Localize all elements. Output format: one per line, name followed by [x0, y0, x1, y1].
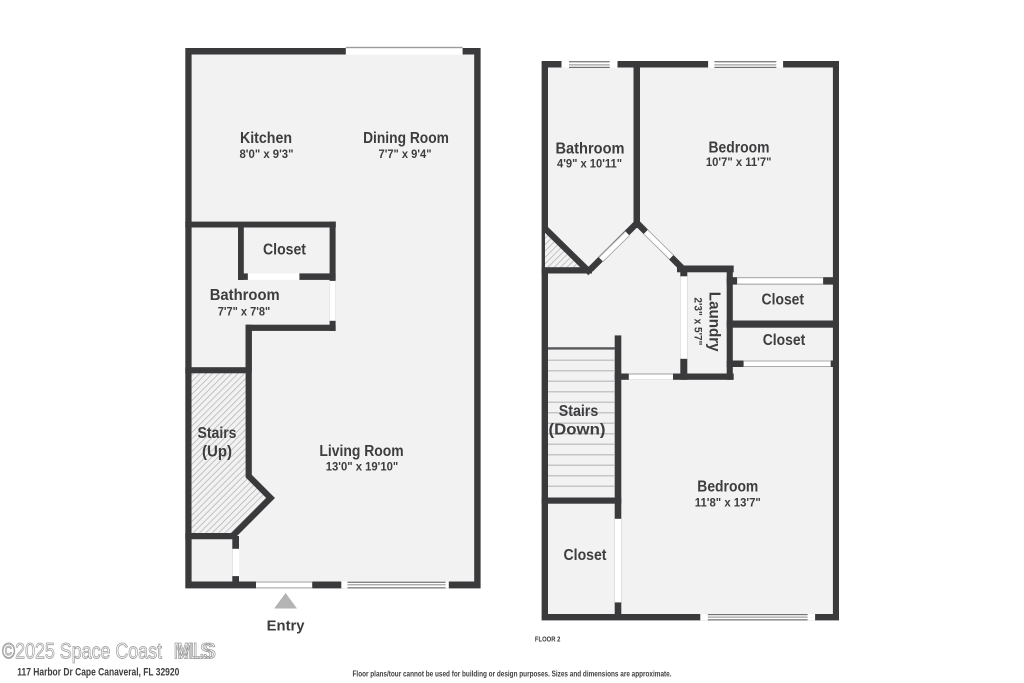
svg-text:11'8" x 13'7": 11'8" x 13'7": [695, 498, 761, 510]
svg-text:Bedroom: Bedroom: [709, 140, 770, 157]
svg-text:FLOOR 2: FLOOR 2: [535, 635, 561, 644]
svg-text:Dining Room: Dining Room: [363, 130, 449, 147]
svg-text:Bedroom: Bedroom: [697, 479, 758, 496]
svg-text:7'7" x 7'8": 7'7" x 7'8": [218, 307, 271, 319]
svg-text:Bathroom: Bathroom: [210, 287, 280, 304]
svg-text:Stairs: Stairs: [198, 425, 237, 442]
svg-text:(Up): (Up): [202, 444, 232, 461]
svg-text:10'7" x 11'7": 10'7" x 11'7": [706, 157, 772, 169]
svg-text:Floor plans/tour cannot be use: Floor plans/tour cannot be used for buil…: [353, 668, 672, 678]
svg-text:(Down): (Down): [549, 422, 606, 439]
svg-text:2'3" x 5'7": 2'3" x 5'7": [692, 297, 704, 345]
svg-text:117 Harbor Dr Cape Canaveral,: 117 Harbor Dr Cape Canaveral, FL 32920: [17, 667, 179, 679]
svg-text:Entry: Entry: [267, 619, 305, 635]
svg-text:4'9" x 10'11": 4'9" x 10'11": [557, 158, 622, 170]
svg-text:Living Room: Living Room: [319, 443, 403, 460]
svg-text:Bathroom: Bathroom: [556, 140, 625, 157]
svg-text:Laundry: Laundry: [706, 292, 723, 352]
svg-text:©2025 Space Coast: ©2025 Space Coast: [2, 639, 163, 664]
svg-text:Closet: Closet: [763, 332, 806, 349]
svg-text:13'0" x 19'10": 13'0" x 19'10": [326, 462, 399, 474]
svg-text:Closet: Closet: [762, 292, 805, 309]
svg-text:MLS: MLS: [174, 639, 213, 664]
svg-text:Closet: Closet: [564, 547, 607, 564]
svg-text:Stairs: Stairs: [559, 403, 599, 420]
svg-text:7'7" x 9'4": 7'7" x 9'4": [379, 149, 432, 161]
svg-text:Closet: Closet: [263, 242, 306, 259]
svg-text:8'0" x 9'3": 8'0" x 9'3": [240, 149, 294, 161]
svg-text:Kitchen: Kitchen: [240, 130, 292, 147]
